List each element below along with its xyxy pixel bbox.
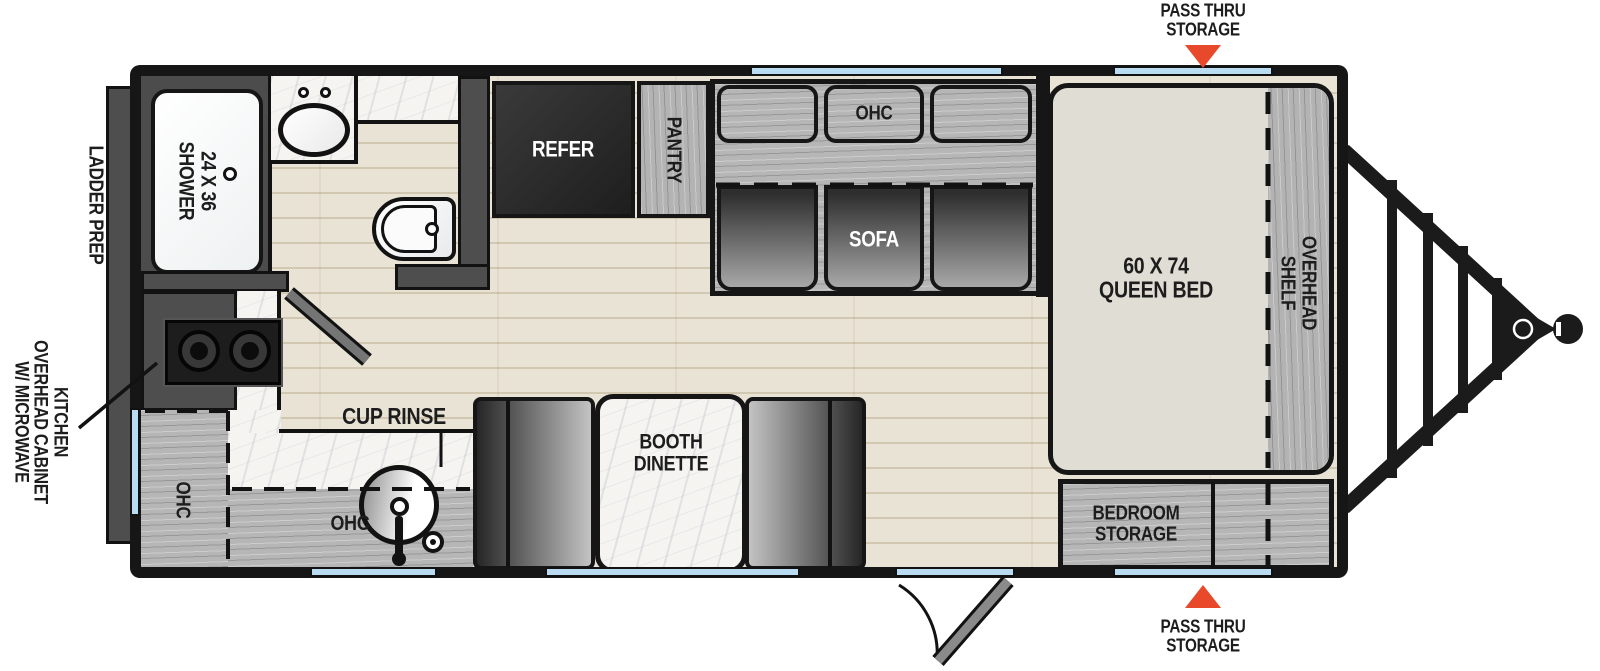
window-kitchen [310,567,437,577]
dinette-bench-left [473,397,595,570]
hitch-coupler [1496,294,1556,364]
dinette-bench-left-divider [506,400,510,567]
kitchen-countertop [228,433,473,490]
hitch-rail-top [1344,150,1537,327]
sofa-ohc-cabinet [717,85,818,143]
toilet-flush-button [425,222,439,236]
floorplan-diagram: PASS THRU STORAGE PASS THRU STORAGE LADD… [0,0,1600,671]
hitch-ball-notch [1556,322,1561,336]
pantry-label: PANTRY [663,117,684,183]
shower-drain [223,167,237,181]
bathroom-kitchen-wall [141,271,289,292]
ladder-prep-label: LADDER PREP [85,145,106,264]
pass-thru-door-bottom [1113,567,1273,577]
bathroom-sink [278,103,350,157]
dinette-table [595,394,747,573]
cup-rinse-label: CUP RINSE [342,405,446,429]
burner-center [190,342,208,360]
booth-dinette-label: BOOTH DINETTE [634,431,709,474]
bathroom-wall-corner [395,264,490,290]
sofa-cushion [930,185,1032,291]
window-sofa [750,66,1003,76]
pass-thru-arrow-top [1185,45,1221,68]
window-dinette [545,567,800,577]
overhead-shelf-label: OVERHEAD SHELF [1277,236,1318,330]
hitch-rail-bottom [1344,331,1537,508]
kitchen-faucet-stem [395,516,403,556]
refer-label: REFER [532,139,594,162]
sofa-ohc-label: OHC [855,104,892,125]
pass-thru-arrow-bottom [1185,585,1221,608]
pass-thru-storage-label-bottom: PASS THRU STORAGE [1161,617,1246,654]
faucet-icon [298,87,309,98]
entry-door-opening [895,567,1015,577]
bedroom-storage-label: BEDROOM STORAGE [1093,503,1180,544]
kitchen-faucet-dot [392,552,406,566]
dinette-bench-right [745,397,866,570]
shower-label: 24 X 36 SHOWER [175,142,218,221]
kitchen-ohc-side-label: OHC [172,481,193,518]
cup-rinse-fixture-dot [430,539,436,545]
burner-center [241,342,259,360]
kitchen-ohc-lower-label: OHC [331,513,370,535]
sofa-cushion [717,185,818,291]
kitchen-faucet-base [390,497,409,516]
faucet-icon [320,87,331,98]
bathroom-wall-right [458,76,490,268]
sofa-label: SOFA [849,229,899,252]
kitchen-overhead-cabinet-label: KITCHEN OVERHEAD CABINET W/ MICROWAVE [11,340,70,504]
pass-thru-storage-label-top: PASS THRU STORAGE [1161,1,1246,38]
dinette-bench-right-divider [828,400,832,567]
bedroom-storage-divider [1211,482,1215,567]
queen-bed-label: 60 X 74 QUEEN BED [1099,254,1213,301]
sofa-ohc-cabinet [930,85,1032,143]
window-rear [130,408,140,516]
